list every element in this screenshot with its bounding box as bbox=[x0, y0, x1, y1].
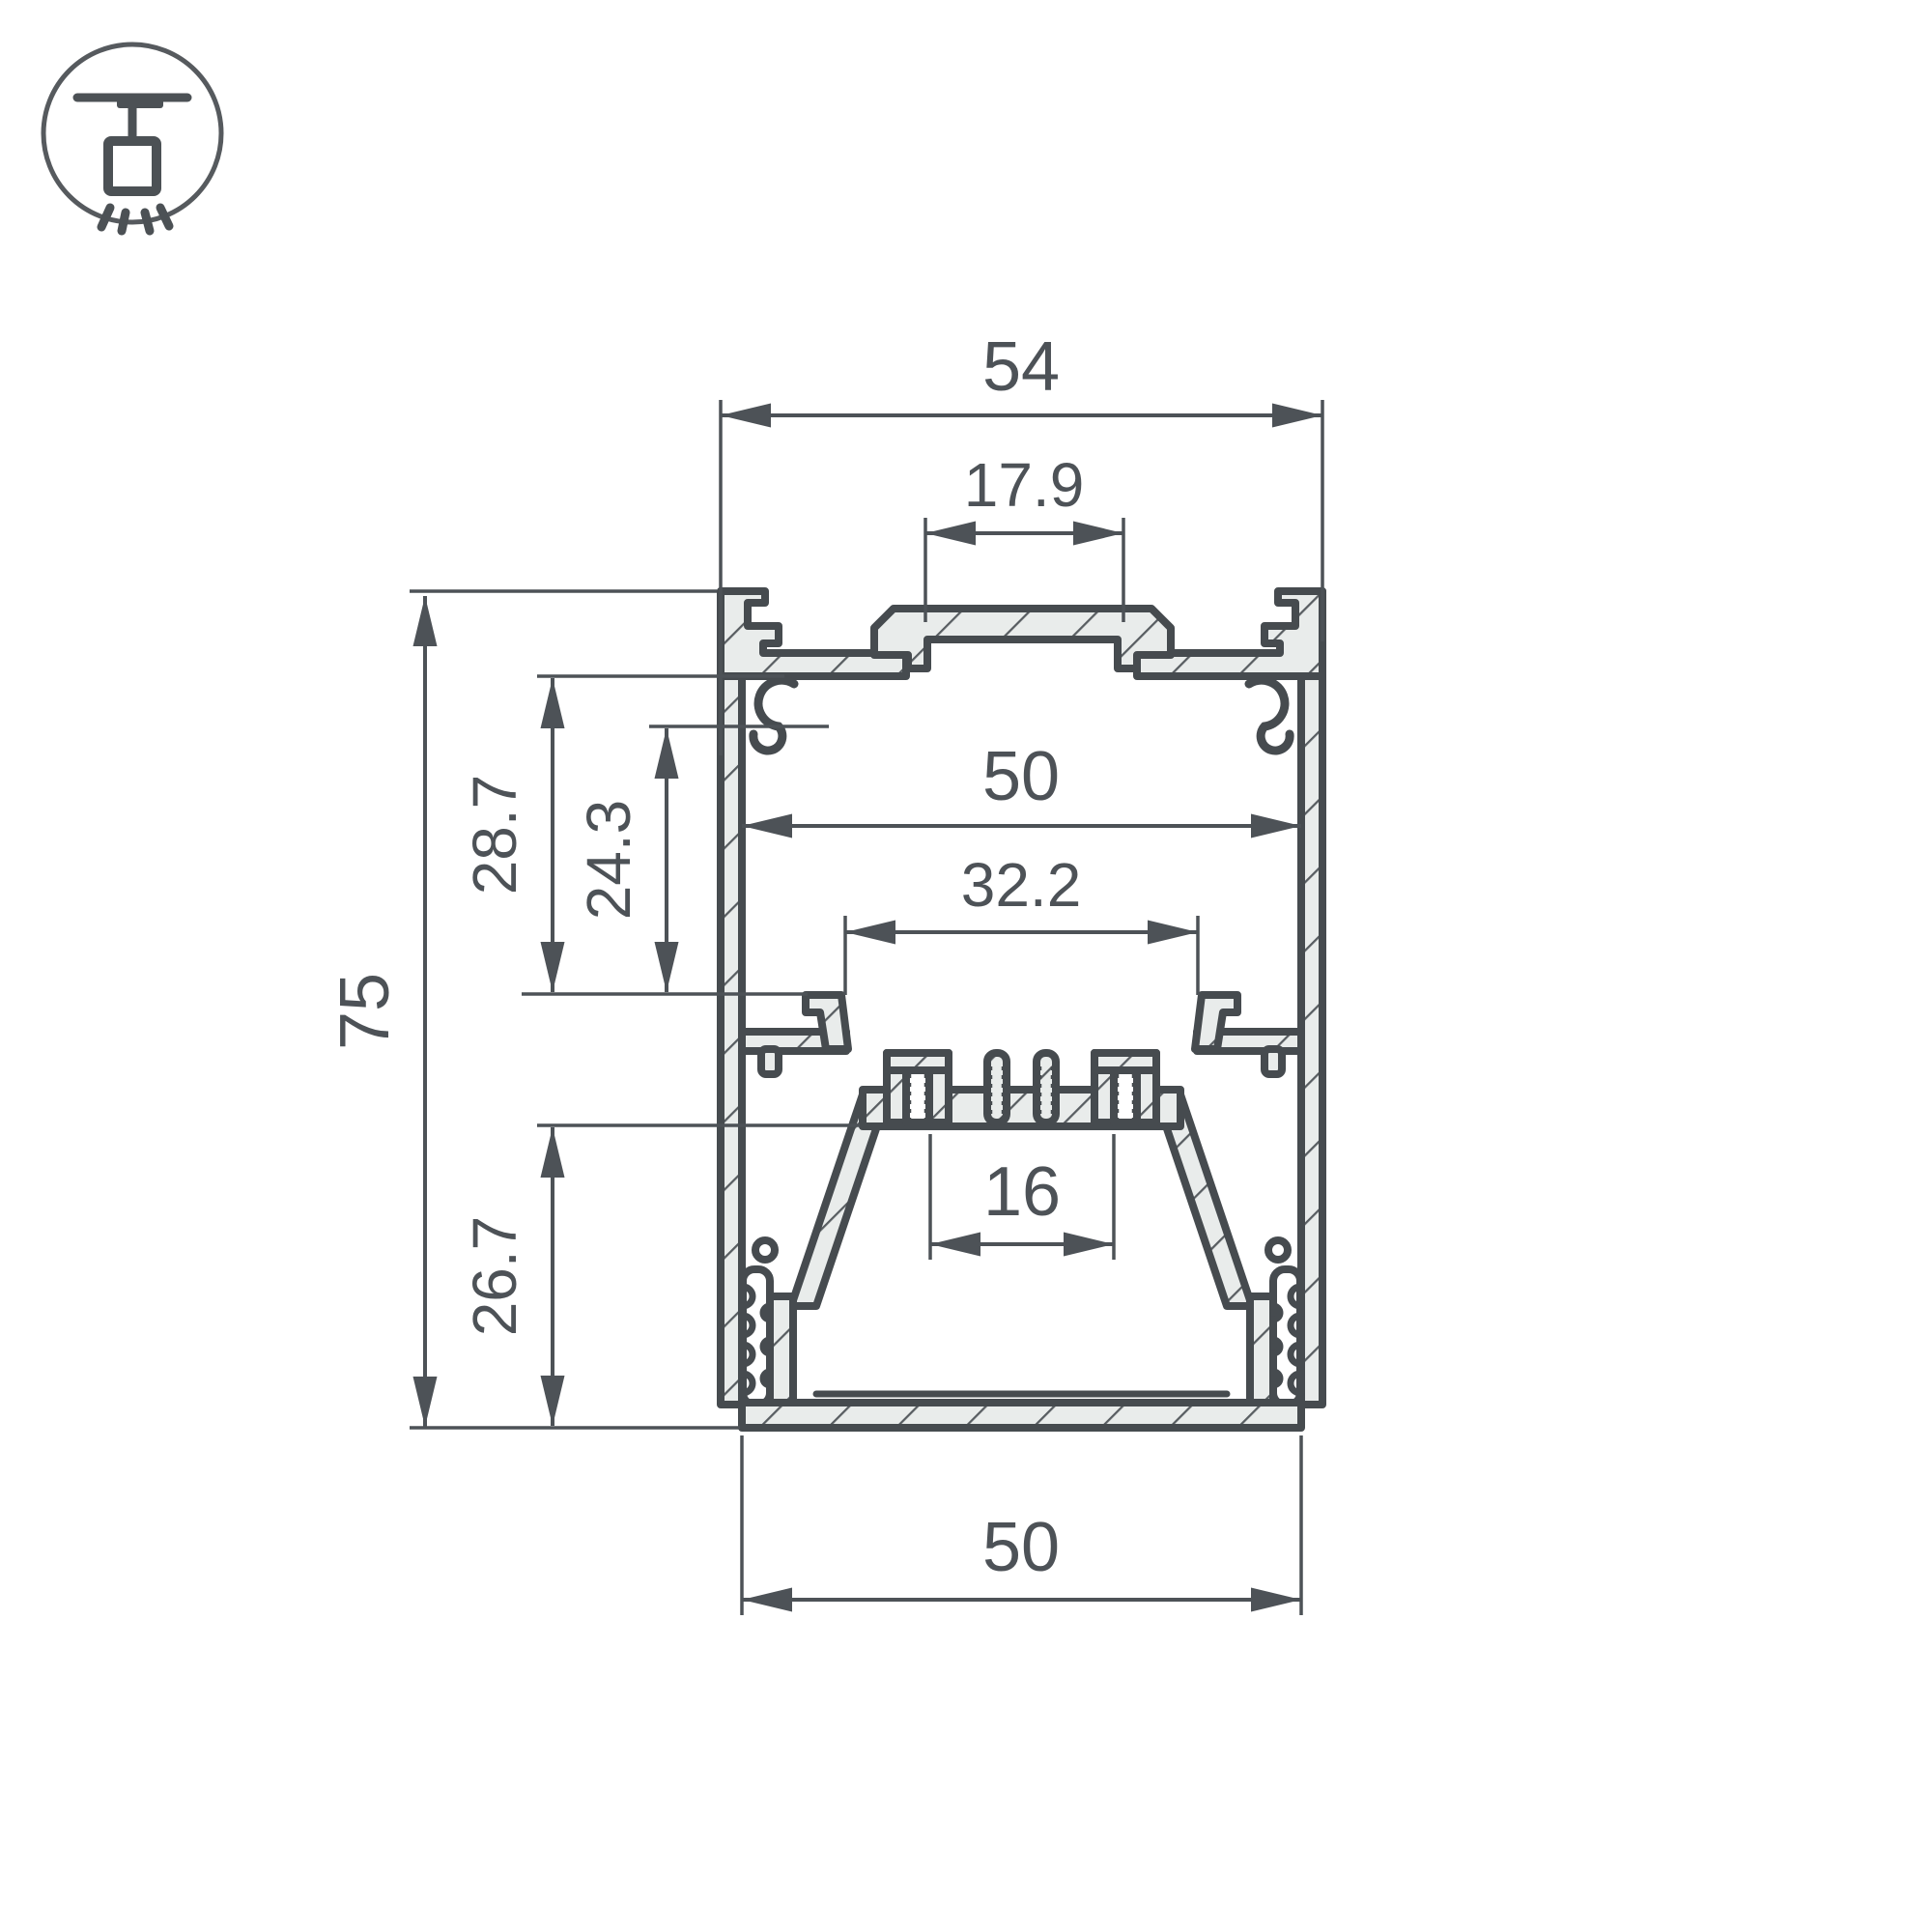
screw-slot-left bbox=[906, 1070, 929, 1122]
drawing-page: 54 17.9 50 32.2 16 bbox=[0, 0, 1932, 1932]
mount-plate bbox=[117, 96, 163, 108]
arrow-left bbox=[845, 921, 895, 945]
extension-line bbox=[845, 916, 1198, 995]
arrow-right bbox=[1073, 522, 1123, 546]
arrow-left bbox=[925, 522, 976, 546]
dim-cover-slot-width: 17.9 bbox=[925, 450, 1123, 622]
profile-cross-section bbox=[721, 591, 1322, 1428]
right-wall bbox=[1301, 591, 1322, 1405]
dim-label: 50 bbox=[982, 738, 1060, 815]
dim-inner-cavity-depth: 24.3 bbox=[574, 726, 829, 992]
arrow-down bbox=[541, 1376, 565, 1426]
arrow-left bbox=[930, 1233, 980, 1257]
arrow-right bbox=[1064, 1233, 1114, 1257]
light-ray-icon bbox=[122, 213, 126, 231]
arrow-up bbox=[541, 678, 565, 728]
arrow-down bbox=[655, 942, 679, 992]
arrow-right bbox=[1272, 404, 1322, 428]
arrow-up bbox=[541, 1127, 565, 1178]
dim-label: 50 bbox=[982, 1509, 1060, 1586]
dim-label: 32.2 bbox=[961, 850, 1082, 920]
arrow-right bbox=[1148, 921, 1198, 945]
dim-label: 75 bbox=[327, 973, 404, 1050]
suspended-mount-icon bbox=[43, 44, 221, 231]
screw-boss-left bbox=[753, 680, 794, 751]
dim-bottom-width: 50 bbox=[742, 1435, 1301, 1615]
dim-inner-width: 50 bbox=[742, 738, 1301, 838]
screw-slot-right bbox=[1114, 1070, 1137, 1122]
suspension-cover bbox=[874, 609, 1171, 668]
pilot-hole-right bbox=[1268, 1240, 1288, 1260]
arrow-right bbox=[1251, 1588, 1301, 1612]
dim-label: 17.9 bbox=[964, 450, 1085, 520]
dim-overall-height: 75 bbox=[327, 591, 740, 1428]
base-plate bbox=[742, 1403, 1301, 1428]
arrow-right bbox=[1251, 814, 1301, 838]
arrow-left bbox=[742, 814, 792, 838]
dim-label: 16 bbox=[983, 1153, 1061, 1231]
ledge-tab-left bbox=[761, 1049, 779, 1074]
pilot-hole-left bbox=[755, 1240, 775, 1260]
dim-label: 26.7 bbox=[460, 1216, 529, 1337]
dim-led-channel: 16 bbox=[930, 1134, 1114, 1260]
arrow-left bbox=[721, 404, 771, 428]
arrow-up bbox=[655, 728, 679, 779]
dim-ledge-opening: 32.2 bbox=[845, 850, 1198, 995]
arrow-up bbox=[413, 596, 438, 646]
arrow-down bbox=[413, 1377, 438, 1427]
dim-label: 28.7 bbox=[460, 775, 529, 895]
light-ray-icon bbox=[160, 208, 169, 226]
light-ray-icon bbox=[145, 213, 150, 231]
technical-drawing: 54 17.9 50 32.2 16 bbox=[0, 0, 1932, 1932]
ledge-tab-right bbox=[1264, 1049, 1282, 1074]
fixture-box bbox=[108, 141, 156, 191]
dim-top-width: 54 bbox=[721, 328, 1322, 755]
dim-label: 24.3 bbox=[574, 800, 643, 921]
arrow-down bbox=[541, 942, 565, 992]
left-wall bbox=[721, 591, 742, 1405]
arrow-left bbox=[742, 1588, 792, 1612]
light-ray-icon bbox=[101, 208, 110, 227]
dim-label: 54 bbox=[982, 328, 1060, 406]
screw-boss-right bbox=[1249, 680, 1290, 751]
